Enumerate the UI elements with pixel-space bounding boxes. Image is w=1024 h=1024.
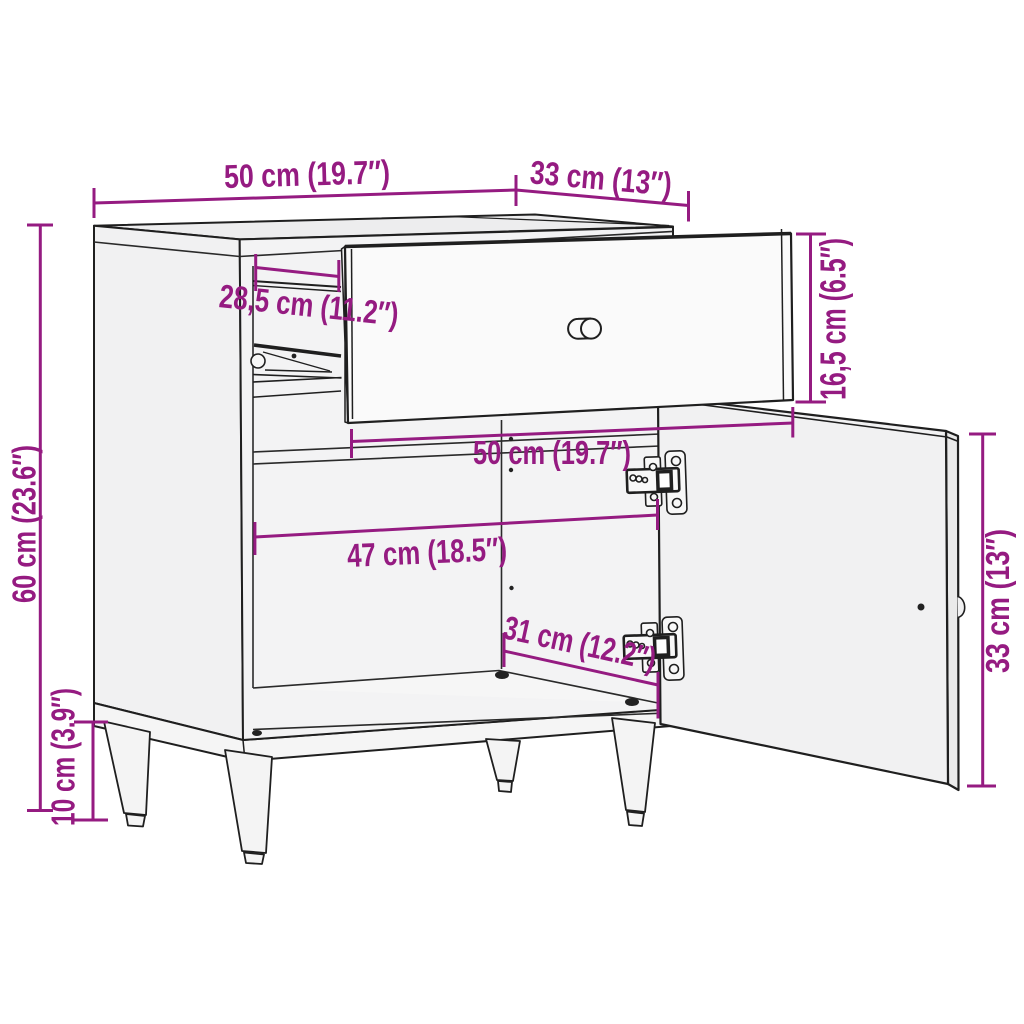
svg-text:50 cm (19.7″): 50 cm (19.7″) [473, 434, 631, 471]
svg-text:47 cm (18.5″): 47 cm (18.5″) [346, 530, 507, 574]
svg-text:33 cm (13″): 33 cm (13″) [979, 529, 1016, 673]
svg-text:60 cm (23.6″): 60 cm (23.6″) [6, 445, 43, 603]
svg-text:10 cm (3.9″): 10 cm (3.9″) [45, 688, 82, 826]
svg-text:16,5 cm (6.5″): 16,5 cm (6.5″) [813, 238, 854, 400]
svg-text:50 cm (19.7″): 50 cm (19.7″) [223, 153, 390, 195]
